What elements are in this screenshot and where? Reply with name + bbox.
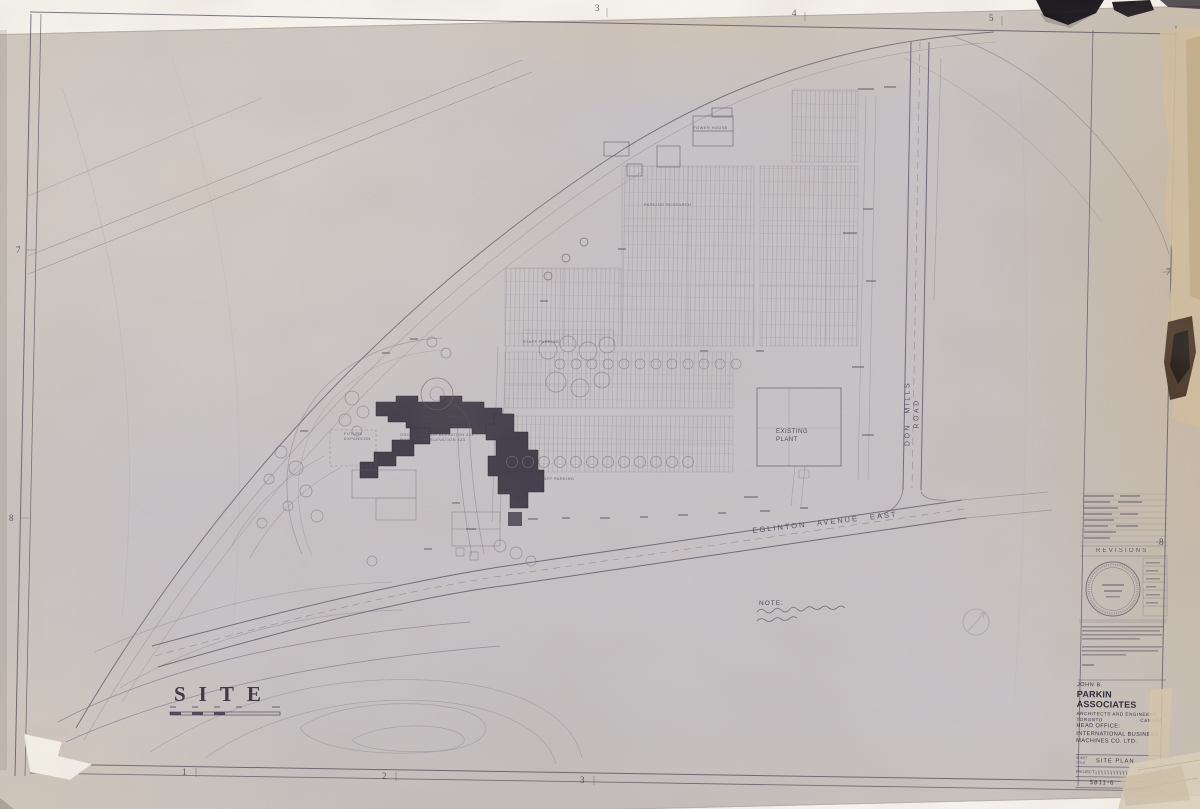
grid-ref-bottom-3: 3 xyxy=(580,774,585,786)
grid-ref-bottom-2: 2 xyxy=(382,770,387,782)
scanned-site-plan: SITE EGLINTON AVENUE EAST DON MILLS ROAD… xyxy=(0,0,1200,809)
sheet-title-label: SHEET TITLE xyxy=(1076,756,1096,765)
grid-ref-left-8: 8 xyxy=(9,512,14,524)
grid-ref-right-8: 8 xyxy=(1159,536,1164,548)
firm-country: CANADA xyxy=(1140,717,1162,722)
future-expansion-label: FUTURE EXPANSION xyxy=(344,431,371,442)
title-block: JOHN B. PARKIN ASSOCIATES ARCHITECTS AND… xyxy=(1076,682,1165,787)
grid-ref-top-4: 4 xyxy=(792,7,797,19)
grid-ref-top-3: 3 xyxy=(595,2,600,14)
label-layer: SITE EGLINTON AVENUE EAST DON MILLS ROAD… xyxy=(0,0,1200,809)
project-scribble xyxy=(1096,770,1128,774)
grid-ref-bottom-1: 1 xyxy=(182,766,187,778)
title-block-rows: SHEET TITLE SITE PLAN PROJECT 5811-6 xyxy=(1076,754,1162,789)
don-mills-road-label: DON MILLS ROAD xyxy=(904,363,923,463)
floor-elevation-labels: GROUND FLOOR ELEVATION 423 MAIN FLOOR EL… xyxy=(400,432,474,443)
note-label: NOTE: xyxy=(759,600,784,609)
firm-location: TORONTO CANADA xyxy=(1076,716,1164,722)
grid-ref-top-5: 5 xyxy=(989,12,994,24)
eglinton-avenue-label: EGLINTON AVENUE EAST xyxy=(752,507,922,536)
client-line3: MACHINES CO. LTD. xyxy=(1076,738,1164,745)
staff-parking-upper-label: STAFF PARKING xyxy=(523,339,559,344)
firm-city: TORONTO xyxy=(1076,716,1102,721)
sheet-title-value: SITE PLAN xyxy=(1096,758,1135,765)
main-entrance-label: MAIN ENTRANCE xyxy=(423,413,461,418)
project-label: PROJECT xyxy=(1076,769,1096,774)
staff-parking-lower-label: STAFF PARKING xyxy=(538,476,574,481)
parking-research-label: PARKING RESEARCH xyxy=(644,202,691,207)
revisions-heading: REVISIONS xyxy=(1096,547,1148,555)
drawing-title: SITE xyxy=(174,680,274,708)
client-line1: HEAD OFFICE: xyxy=(1076,723,1164,730)
grid-ref-right-7: 7 xyxy=(1166,266,1171,278)
drawing-number: 5811-6 xyxy=(1090,779,1115,786)
existing-plant-label: EXISTING PLANT xyxy=(776,428,808,444)
firm-name: PARKIN ASSOCIATES xyxy=(1077,689,1165,710)
power-house-label: POWER HOUSE xyxy=(693,125,728,130)
grid-ref-left-7: 7 xyxy=(16,244,21,256)
drawing-number-row: 5811-6 xyxy=(1076,776,1162,789)
firm-prefix: JOHN B. xyxy=(1077,682,1165,689)
client-line2: INTERNATIONAL BUSINESS xyxy=(1076,730,1164,737)
